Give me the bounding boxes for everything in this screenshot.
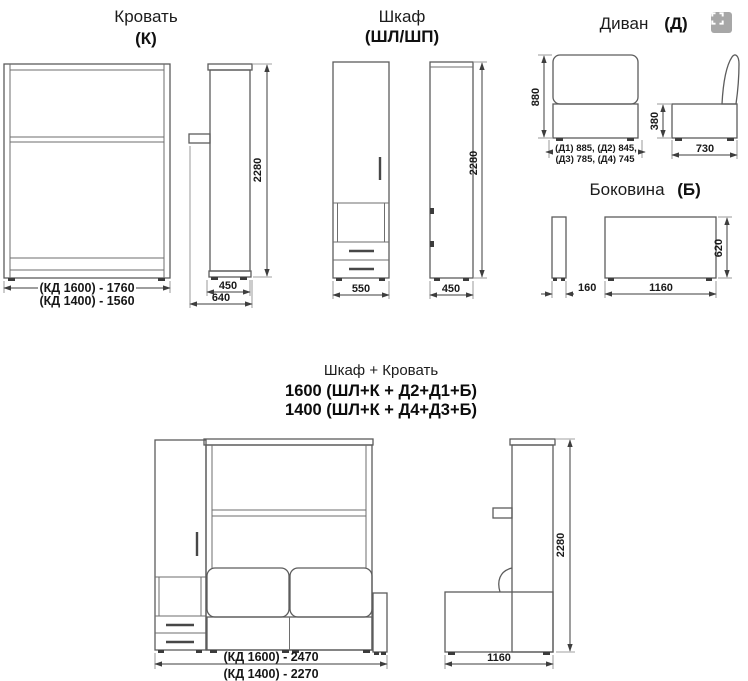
bed-front-width-1400: (КД 1400) - 1560 bbox=[39, 294, 134, 308]
bed-front-view: (КД 1600) - 1760 (КД 1400) - 1560 bbox=[4, 64, 170, 308]
sofa-side-view: 380 730 bbox=[649, 55, 739, 159]
bed-section: Кровать (К) (КД 1600) - 1760 (КД 1400) -… bbox=[4, 7, 272, 308]
side-panel-title: Боковина bbox=[589, 180, 665, 199]
combo-side-panel bbox=[373, 593, 387, 652]
sofa-section: Диван (Д) 880 (Д1) 885, (Д2) 845, (Д3) 7… bbox=[530, 14, 739, 165]
bed-side-depth-total: 640 bbox=[212, 292, 230, 304]
combo-section: Шкаф + Кровать 1600 (ШЛ+К + Д2+Д1+Б) 140… bbox=[155, 362, 575, 681]
combo-front-view: (КД 1600) - 2470 (КД 1400) - 2270 bbox=[155, 439, 387, 681]
combo-side-depth: 1160 bbox=[487, 652, 511, 664]
wardrobe-side-view: 450 2280 bbox=[430, 62, 487, 299]
bed-side-height: 2280 bbox=[252, 158, 264, 182]
bed-side-view: 450 640 2280 bbox=[189, 64, 272, 308]
fullscreen-button[interactable] bbox=[711, 12, 732, 33]
sofa-backrest bbox=[722, 55, 739, 104]
side-panel-edge-view: 160 bbox=[541, 217, 596, 298]
bed-title: Кровать bbox=[114, 7, 178, 26]
sofa-subtitle: (Д) bbox=[664, 14, 687, 33]
combo-variant-1600: 1600 (ШЛ+К + Д2+Д1+Б) bbox=[285, 382, 477, 400]
diagram-canvas: Кровать (К) (КД 1600) - 1760 (КД 1400) -… bbox=[0, 0, 748, 681]
bed-subtitle: (К) bbox=[135, 29, 157, 48]
wardrobe-side-height: 2280 bbox=[468, 151, 480, 175]
wardrobe-side-depth: 450 bbox=[442, 283, 460, 295]
expand-icon bbox=[711, 12, 724, 25]
sofa-side-seat-height: 380 bbox=[649, 112, 661, 130]
sofa-front-height: 880 bbox=[530, 88, 542, 106]
combo-side-view: 1160 2280 bbox=[445, 439, 575, 669]
wardrobe-title: Шкаф bbox=[379, 7, 426, 26]
combo-bed-handle bbox=[493, 508, 512, 518]
side-panel-thickness: 160 bbox=[578, 282, 596, 294]
combo-variant-1400: 1400 (ШЛ+К + Д4+Д3+Б) bbox=[285, 401, 477, 419]
side-panel-section: Боковина (Б) 160 1160 620 bbox=[541, 180, 732, 298]
sofa-front-view: 880 (Д1) 885, (Д2) 845, (Д3) 785, (Д4) 7… bbox=[530, 55, 645, 165]
wardrobe-front-view: 550 bbox=[333, 62, 389, 299]
combo-title: Шкаф + Кровать bbox=[324, 362, 439, 379]
combo-backrest-curve bbox=[499, 568, 512, 592]
side-panel-subtitle: (Б) bbox=[677, 180, 701, 199]
combo-front-width-1600: (КД 1600) - 2470 bbox=[223, 650, 318, 664]
combo-side-height: 2280 bbox=[555, 533, 567, 557]
wardrobe-subtitle: (ШЛ/ШП) bbox=[365, 27, 439, 46]
bed-front-width-1600: (КД 1600) - 1760 bbox=[39, 281, 134, 295]
side-panel-face-view: 1160 620 bbox=[605, 217, 732, 298]
furniture-spec-sheet: Кровать (К) (КД 1600) - 1760 (КД 1400) -… bbox=[0, 0, 748, 681]
sofa-front-widths-line1: (Д1) 885, (Д2) 845, bbox=[555, 143, 637, 154]
wardrobe-front-width: 550 bbox=[352, 283, 370, 295]
sofa-title: Диван bbox=[600, 14, 649, 33]
combo-front-width-1400: (КД 1400) - 2270 bbox=[223, 667, 318, 681]
bed-handle bbox=[189, 134, 210, 143]
sofa-side-depth: 730 bbox=[696, 143, 714, 155]
sofa-front-widths-line2: (Д3) 785, (Д4) 745 bbox=[555, 154, 635, 165]
wardrobe-section: Шкаф (ШЛ/ШП) 550 bbox=[333, 7, 487, 299]
bed-side-depth: 450 bbox=[219, 280, 237, 292]
side-panel-height: 620 bbox=[713, 239, 725, 257]
side-panel-length: 1160 bbox=[649, 282, 673, 294]
